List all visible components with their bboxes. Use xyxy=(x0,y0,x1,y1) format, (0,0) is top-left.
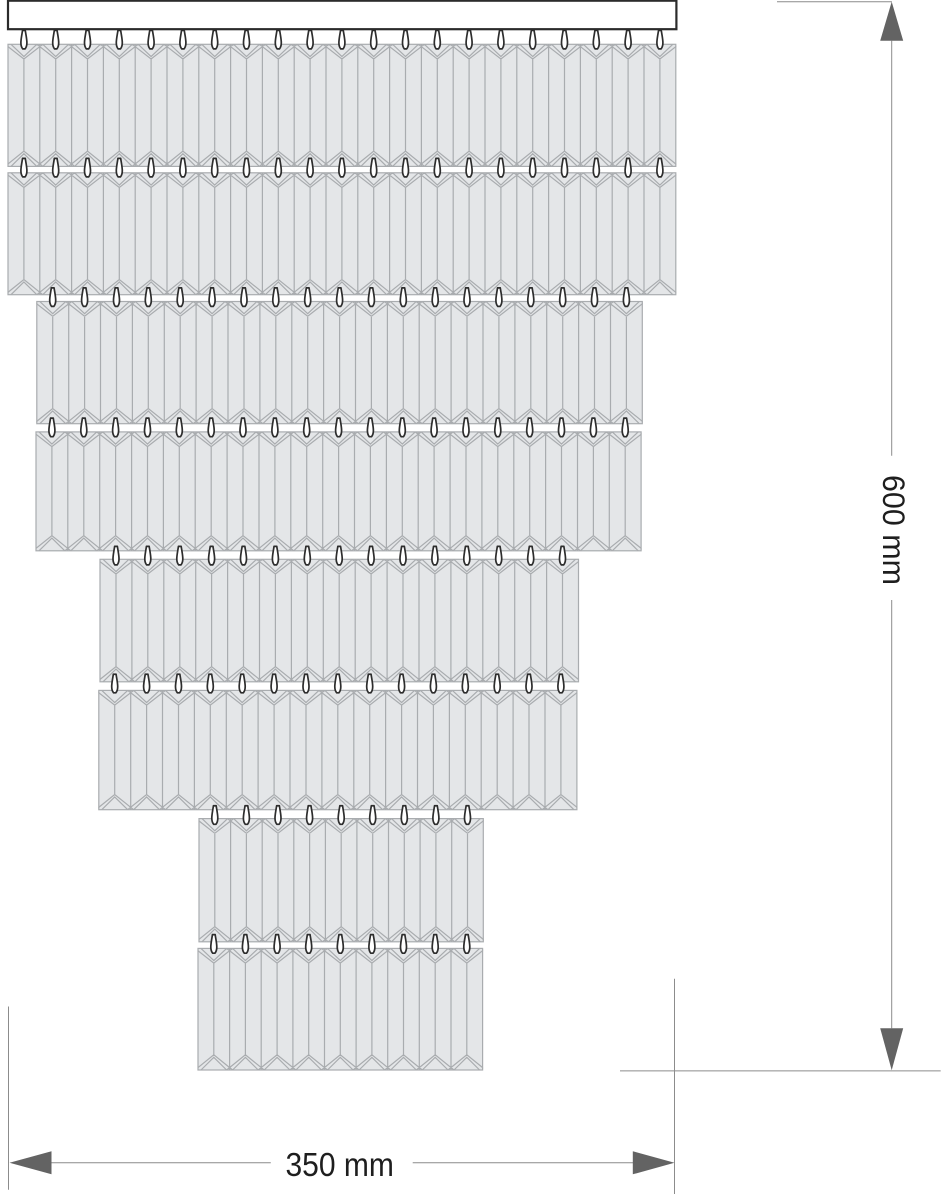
svg-text:600 mm: 600 mm xyxy=(876,475,912,585)
svg-text:350 mm: 350 mm xyxy=(285,1147,394,1184)
